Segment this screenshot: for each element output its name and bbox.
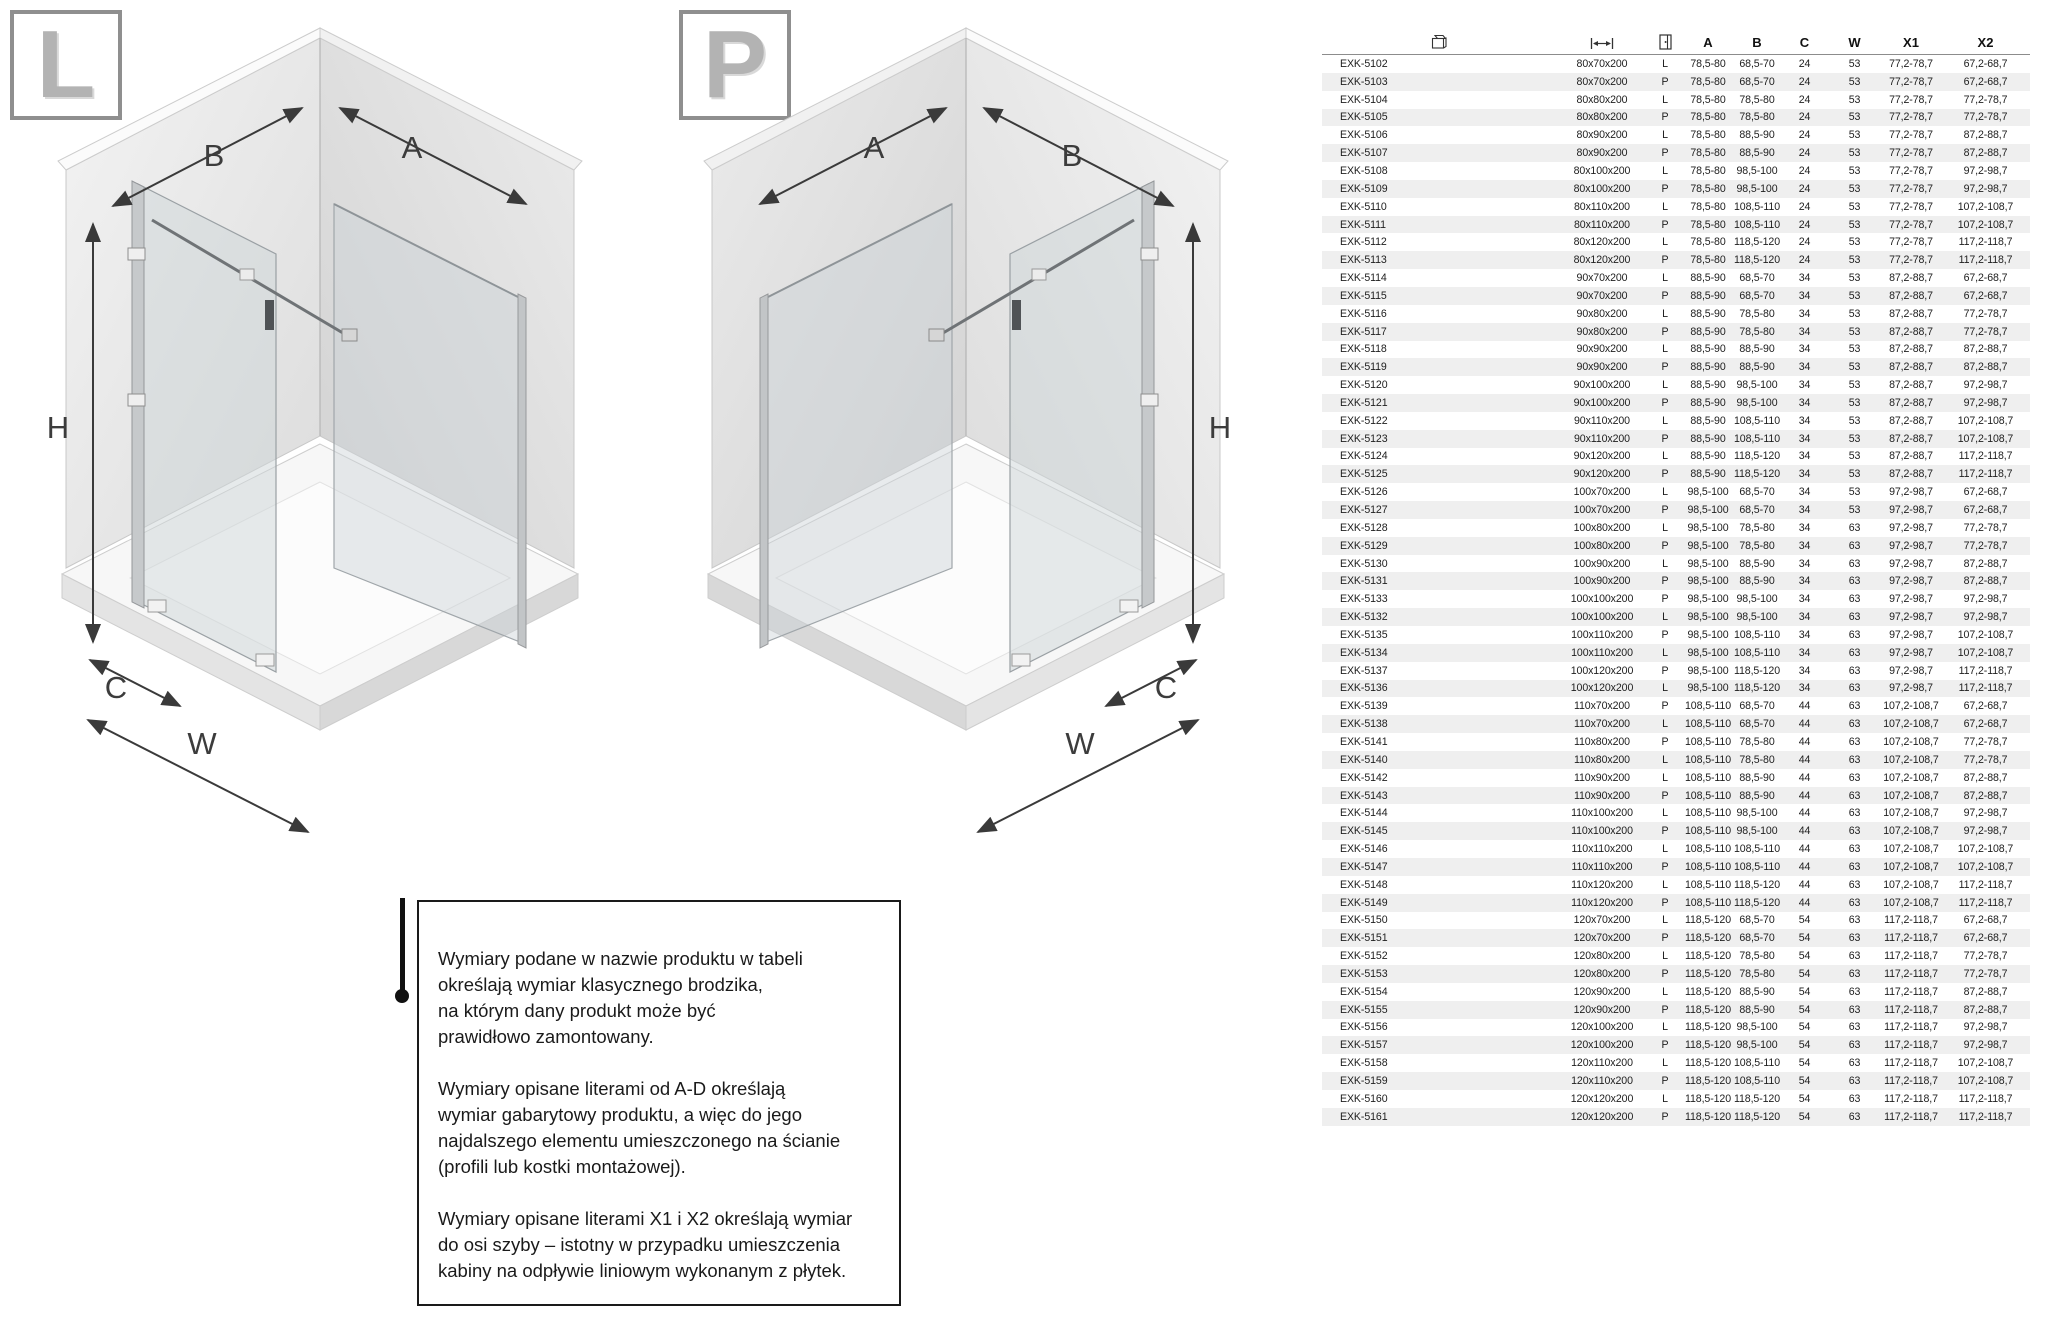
cell-c: 24 — [1781, 236, 1828, 248]
cell-x2: 67,2-68,7 — [1941, 486, 2030, 498]
cell-x1: 97,2-98,7 — [1881, 504, 1941, 516]
cell-side: P — [1647, 575, 1683, 587]
table-row: EXK-5145110x100x200P108,5-11098,5-100446… — [1322, 822, 2030, 840]
cell-a: 118,5-120 — [1683, 1093, 1733, 1105]
cell-x1: 97,2-98,7 — [1881, 593, 1941, 605]
cell-dims: 90x120x200 — [1557, 468, 1647, 480]
cell-b: 88,5-90 — [1733, 147, 1781, 159]
cell-b: 88,5-90 — [1733, 575, 1781, 587]
cell-code: EXK-5141 — [1322, 736, 1557, 748]
cell-x1: 97,2-98,7 — [1881, 522, 1941, 534]
cell-b: 108,5-110 — [1733, 201, 1781, 213]
table-row: EXK-510980x100x200P78,5-8098,5-100245377… — [1322, 180, 2030, 198]
cell-x2: 67,2-68,7 — [1941, 914, 2030, 926]
cell-b: 98,5-100 — [1733, 183, 1781, 195]
cell-code: EXK-5149 — [1322, 897, 1557, 909]
cell-c: 24 — [1781, 254, 1828, 266]
cell-x1: 117,2-118,7 — [1881, 1111, 1941, 1123]
cell-x2: 97,2-98,7 — [1941, 593, 2030, 605]
cell-a: 78,5-80 — [1683, 236, 1733, 248]
cell-w: 53 — [1828, 111, 1881, 123]
table-row: EXK-5158120x110x200L118,5-120108,5-11054… — [1322, 1054, 2030, 1072]
cell-dims: 80x80x200 — [1557, 94, 1647, 106]
cell-x2: 107,2-108,7 — [1941, 843, 2030, 855]
cell-side: P — [1647, 790, 1683, 802]
cell-w: 53 — [1828, 129, 1881, 141]
cell-w: 53 — [1828, 433, 1881, 445]
cell-dims: 80x70x200 — [1557, 76, 1647, 88]
cell-x1: 107,2-108,7 — [1881, 897, 1941, 909]
cell-b: 98,5-100 — [1733, 165, 1781, 177]
cell-w: 63 — [1828, 1021, 1881, 1033]
cell-c: 34 — [1781, 522, 1828, 534]
cell-code: EXK-5115 — [1322, 290, 1557, 302]
cell-c: 34 — [1781, 540, 1828, 552]
cell-b: 88,5-90 — [1733, 558, 1781, 570]
cell-w: 63 — [1828, 861, 1881, 873]
cell-c: 34 — [1781, 308, 1828, 320]
cell-dims: 120x80x200 — [1557, 950, 1647, 962]
cell-b: 98,5-100 — [1733, 1039, 1781, 1051]
cell-dims: 100x100x200 — [1557, 593, 1647, 605]
cell-a: 78,5-80 — [1683, 111, 1733, 123]
cell-a: 118,5-120 — [1683, 1039, 1733, 1051]
cell-x2: 67,2-68,7 — [1941, 58, 2030, 70]
cell-c: 44 — [1781, 843, 1828, 855]
cell-code: EXK-5144 — [1322, 807, 1557, 819]
cell-code: EXK-5147 — [1322, 861, 1557, 873]
table-row: EXK-511380x120x200P78,5-80118,5-12024537… — [1322, 251, 2030, 269]
cell-x1: 107,2-108,7 — [1881, 825, 1941, 837]
cell-code: EXK-5146 — [1322, 843, 1557, 855]
dim-label-h: H — [47, 410, 69, 445]
left-shower-diagram: B A H C W — [18, 8, 618, 888]
cell-x1: 107,2-108,7 — [1881, 772, 1941, 784]
cell-c: 54 — [1781, 1075, 1828, 1087]
cell-side: L — [1647, 843, 1683, 855]
cell-dims: 100x110x200 — [1557, 647, 1647, 659]
cell-code: EXK-5126 — [1322, 486, 1557, 498]
cell-w: 53 — [1828, 450, 1881, 462]
cell-code: EXK-5154 — [1322, 986, 1557, 998]
table-row: EXK-5136100x120x200L98,5-100118,5-120346… — [1322, 680, 2030, 698]
cell-c: 24 — [1781, 76, 1828, 88]
cell-x2: 117,2-118,7 — [1941, 1093, 2030, 1105]
cell-w: 53 — [1828, 147, 1881, 159]
cell-x1: 107,2-108,7 — [1881, 754, 1941, 766]
cell-x1: 117,2-118,7 — [1881, 1021, 1941, 1033]
cell-x1: 107,2-108,7 — [1881, 736, 1941, 748]
cell-c: 44 — [1781, 754, 1828, 766]
cell-w: 53 — [1828, 201, 1881, 213]
table-row: EXK-510880x100x200L78,5-8098,5-100245377… — [1322, 162, 2030, 180]
cell-x1: 97,2-98,7 — [1881, 575, 1941, 587]
table-row: EXK-5139110x70x200P108,5-11068,5-7044631… — [1322, 697, 2030, 715]
table-row: EXK-5144110x100x200L108,5-11098,5-100446… — [1322, 804, 2030, 822]
cell-x2: 117,2-118,7 — [1941, 897, 2030, 909]
table-row: EXK-5132100x100x200L98,5-10098,5-1003463… — [1322, 608, 2030, 626]
cell-side: L — [1647, 1057, 1683, 1069]
cell-side: L — [1647, 486, 1683, 498]
cell-code: EXK-5131 — [1322, 575, 1557, 587]
cell-side: P — [1647, 504, 1683, 516]
cell-w: 63 — [1828, 1093, 1881, 1105]
cell-code: EXK-5160 — [1322, 1093, 1557, 1105]
cell-w: 63 — [1828, 897, 1881, 909]
table-row: EXK-5130100x90x200L98,5-10088,5-90346397… — [1322, 555, 2030, 573]
cell-c: 24 — [1781, 219, 1828, 231]
info-accent-line — [400, 898, 405, 990]
info-paragraph: Wymiary opisane literami od A-D określaj… — [438, 1076, 885, 1180]
table-row: EXK-511890x90x200L88,5-9088,5-90345387,2… — [1322, 341, 2030, 359]
table-row: EXK-512490x120x200L88,5-90118,5-12034538… — [1322, 448, 2030, 466]
cell-b: 118,5-120 — [1733, 468, 1781, 480]
cell-side: P — [1647, 540, 1683, 552]
cell-dims: 100x120x200 — [1557, 682, 1647, 694]
cell-dims: 110x70x200 — [1557, 718, 1647, 730]
cell-x2: 97,2-98,7 — [1941, 165, 2030, 177]
cell-side: P — [1647, 1004, 1683, 1016]
cell-code: EXK-5120 — [1322, 379, 1557, 391]
cell-x1: 97,2-98,7 — [1881, 558, 1941, 570]
cell-b: 68,5-70 — [1733, 700, 1781, 712]
info-paragraph: Wymiary podane w nazwie produktu w tabel… — [438, 946, 885, 1050]
cell-code: EXK-5119 — [1322, 361, 1557, 373]
cell-w: 63 — [1828, 736, 1881, 748]
table-row: EXK-511280x120x200L78,5-80118,5-12024537… — [1322, 233, 2030, 251]
cell-c: 54 — [1781, 1039, 1828, 1051]
cell-a: 118,5-120 — [1683, 950, 1733, 962]
cell-dims: 110x100x200 — [1557, 807, 1647, 819]
cell-c: 24 — [1781, 165, 1828, 177]
cell-side: L — [1647, 201, 1683, 213]
cell-c: 34 — [1781, 504, 1828, 516]
cell-dims: 110x90x200 — [1557, 772, 1647, 784]
cell-code: EXK-5111 — [1322, 219, 1557, 231]
cell-a: 88,5-90 — [1683, 397, 1733, 409]
cell-dims: 110x120x200 — [1557, 879, 1647, 891]
dim-label-b: B — [204, 138, 225, 173]
col-header-a: A — [1683, 35, 1733, 50]
cell-b: 88,5-90 — [1733, 361, 1781, 373]
cell-code: EXK-5105 — [1322, 111, 1557, 123]
table-row: EXK-5148110x120x200L108,5-110118,5-12044… — [1322, 876, 2030, 894]
cell-b: 118,5-120 — [1733, 254, 1781, 266]
cell-code: EXK-5135 — [1322, 629, 1557, 641]
cell-dims: 120x80x200 — [1557, 968, 1647, 980]
cell-x2: 107,2-108,7 — [1941, 1075, 2030, 1087]
cell-w: 53 — [1828, 219, 1881, 231]
cell-side: P — [1647, 361, 1683, 373]
cell-x2: 77,2-78,7 — [1941, 111, 2030, 123]
cell-a: 98,5-100 — [1683, 540, 1733, 552]
cell-w: 63 — [1828, 682, 1881, 694]
cell-x1: 87,2-88,7 — [1881, 433, 1941, 445]
cell-a: 78,5-80 — [1683, 201, 1733, 213]
info-accent-dot — [395, 989, 409, 1003]
cell-x1: 87,2-88,7 — [1881, 308, 1941, 320]
cell-x1: 77,2-78,7 — [1881, 129, 1941, 141]
table-row: EXK-512390x110x200P88,5-90108,5-11034538… — [1322, 430, 2030, 448]
cell-a: 108,5-110 — [1683, 843, 1733, 855]
cell-dims: 100x100x200 — [1557, 611, 1647, 623]
cell-c: 44 — [1781, 790, 1828, 802]
cell-b: 108,5-110 — [1733, 433, 1781, 445]
cell-a: 88,5-90 — [1683, 415, 1733, 427]
cell-w: 53 — [1828, 58, 1881, 70]
cell-x1: 87,2-88,7 — [1881, 379, 1941, 391]
cell-a: 108,5-110 — [1683, 700, 1733, 712]
cell-b: 68,5-70 — [1733, 58, 1781, 70]
cell-code: EXK-5145 — [1322, 825, 1557, 837]
cell-x2: 77,2-78,7 — [1941, 968, 2030, 980]
cell-x1: 107,2-108,7 — [1881, 790, 1941, 802]
cell-a: 78,5-80 — [1683, 254, 1733, 266]
cell-x1: 117,2-118,7 — [1881, 1004, 1941, 1016]
dimensions-icon — [1557, 37, 1647, 50]
cell-dims: 120x120x200 — [1557, 1111, 1647, 1123]
cell-c: 44 — [1781, 736, 1828, 748]
info-box: Wymiary podane w nazwie produktu w tabel… — [417, 900, 901, 1306]
cell-x1: 107,2-108,7 — [1881, 718, 1941, 730]
cell-x2: 67,2-68,7 — [1941, 290, 2030, 302]
cell-x1: 117,2-118,7 — [1881, 986, 1941, 998]
cell-side: L — [1647, 1093, 1683, 1105]
cell-code: EXK-5116 — [1322, 308, 1557, 320]
cell-b: 68,5-70 — [1733, 504, 1781, 516]
cell-x2: 107,2-108,7 — [1941, 219, 2030, 231]
cell-x1: 77,2-78,7 — [1881, 219, 1941, 231]
cell-dims: 90x80x200 — [1557, 326, 1647, 338]
cell-a: 108,5-110 — [1683, 879, 1733, 891]
cell-side: L — [1647, 1021, 1683, 1033]
cell-w: 53 — [1828, 415, 1881, 427]
cell-a: 98,5-100 — [1683, 629, 1733, 641]
cell-a: 98,5-100 — [1683, 575, 1733, 587]
cell-x2: 107,2-108,7 — [1941, 415, 2030, 427]
dim-label-b: B — [1062, 138, 1083, 173]
cell-b: 78,5-80 — [1733, 326, 1781, 338]
cell-code: EXK-5156 — [1322, 1021, 1557, 1033]
cell-w: 53 — [1828, 254, 1881, 266]
cell-a: 88,5-90 — [1683, 343, 1733, 355]
cell-code: EXK-5151 — [1322, 932, 1557, 944]
cell-a: 98,5-100 — [1683, 647, 1733, 659]
cell-dims: 110x110x200 — [1557, 861, 1647, 873]
cell-x2: 117,2-118,7 — [1941, 450, 2030, 462]
cell-c: 54 — [1781, 986, 1828, 998]
cell-dims: 90x120x200 — [1557, 450, 1647, 462]
table-row: EXK-5133100x100x200P98,5-10098,5-1003463… — [1322, 590, 2030, 608]
cell-dims: 90x70x200 — [1557, 272, 1647, 284]
cell-x1: 77,2-78,7 — [1881, 111, 1941, 123]
cell-x2: 107,2-108,7 — [1941, 201, 2030, 213]
table-row: EXK-5128100x80x200L98,5-10078,5-80346397… — [1322, 519, 2030, 537]
cell-c: 34 — [1781, 290, 1828, 302]
cell-a: 88,5-90 — [1683, 290, 1733, 302]
cell-c: 34 — [1781, 433, 1828, 445]
cell-x2: 107,2-108,7 — [1941, 647, 2030, 659]
cell-code: EXK-5122 — [1322, 415, 1557, 427]
cell-a: 118,5-120 — [1683, 1111, 1733, 1123]
cell-c: 44 — [1781, 718, 1828, 730]
cell-w: 63 — [1828, 718, 1881, 730]
cell-b: 88,5-90 — [1733, 343, 1781, 355]
cell-code: EXK-5104 — [1322, 94, 1557, 106]
cell-w: 53 — [1828, 308, 1881, 320]
table-row: EXK-512290x110x200L88,5-90108,5-11034538… — [1322, 412, 2030, 430]
cell-dims: 90x100x200 — [1557, 379, 1647, 391]
table-row: EXK-5143110x90x200P108,5-11088,5-9044631… — [1322, 787, 2030, 805]
cell-x1: 117,2-118,7 — [1881, 1039, 1941, 1051]
cell-a: 108,5-110 — [1683, 807, 1733, 819]
table-row: EXK-511490x70x200L88,5-9068,5-70345387,2… — [1322, 269, 2030, 287]
cell-b: 68,5-70 — [1733, 486, 1781, 498]
cell-x2: 77,2-78,7 — [1941, 94, 2030, 106]
cell-side: P — [1647, 147, 1683, 159]
cell-a: 88,5-90 — [1683, 361, 1733, 373]
cell-x1: 77,2-78,7 — [1881, 236, 1941, 248]
table-row: EXK-5141110x80x200P108,5-11078,5-8044631… — [1322, 733, 2030, 751]
table-row: EXK-5157120x100x200P118,5-12098,5-100546… — [1322, 1036, 2030, 1054]
cell-side: L — [1647, 754, 1683, 766]
cell-dims: 120x90x200 — [1557, 1004, 1647, 1016]
cell-x1: 117,2-118,7 — [1881, 932, 1941, 944]
table-row: EXK-5150120x70x200L118,5-12068,5-7054631… — [1322, 912, 2030, 930]
cell-code: EXK-5137 — [1322, 665, 1557, 677]
cell-c: 44 — [1781, 879, 1828, 891]
col-header-x1: X1 — [1881, 35, 1941, 50]
cell-code: EXK-5136 — [1322, 682, 1557, 694]
dim-label-c: C — [1155, 670, 1177, 705]
door-side-icon — [1647, 34, 1683, 50]
cell-side: L — [1647, 522, 1683, 534]
cell-b: 98,5-100 — [1733, 825, 1781, 837]
cell-b: 68,5-70 — [1733, 914, 1781, 926]
cell-b: 68,5-70 — [1733, 290, 1781, 302]
cell-x2: 67,2-68,7 — [1941, 718, 2030, 730]
cell-b: 78,5-80 — [1733, 968, 1781, 980]
cell-c: 34 — [1781, 629, 1828, 641]
cell-c: 34 — [1781, 558, 1828, 570]
cell-side: L — [1647, 558, 1683, 570]
dim-label-a: A — [864, 130, 885, 165]
cell-a: 78,5-80 — [1683, 129, 1733, 141]
cell-code: EXK-5112 — [1322, 236, 1557, 248]
product-box-icon — [1322, 34, 1557, 50]
table-row: EXK-5126100x70x200L98,5-10068,5-70345397… — [1322, 483, 2030, 501]
cell-code: EXK-5127 — [1322, 504, 1557, 516]
cell-x2: 87,2-88,7 — [1941, 147, 2030, 159]
cell-c: 44 — [1781, 861, 1828, 873]
cell-side: L — [1647, 272, 1683, 284]
cell-code: EXK-5140 — [1322, 754, 1557, 766]
cell-c: 34 — [1781, 397, 1828, 409]
cell-side: L — [1647, 308, 1683, 320]
cell-b: 78,5-80 — [1733, 308, 1781, 320]
cell-x2: 67,2-68,7 — [1941, 700, 2030, 712]
cell-w: 63 — [1828, 843, 1881, 855]
cell-dims: 80x100x200 — [1557, 165, 1647, 177]
cell-x2: 77,2-78,7 — [1941, 522, 2030, 534]
cell-c: 44 — [1781, 700, 1828, 712]
cell-side: P — [1647, 897, 1683, 909]
cell-dims: 110x90x200 — [1557, 790, 1647, 802]
table-row: EXK-5146110x110x200L108,5-110108,5-11044… — [1322, 840, 2030, 858]
table-row: EXK-510680x90x200L78,5-8088,5-90245377,2… — [1322, 126, 2030, 144]
col-header-w: W — [1828, 35, 1881, 50]
cell-a: 108,5-110 — [1683, 754, 1733, 766]
table-row: EXK-5135100x110x200P98,5-100108,5-110346… — [1322, 626, 2030, 644]
cell-w: 53 — [1828, 397, 1881, 409]
cell-code: EXK-5123 — [1322, 433, 1557, 445]
cell-w: 53 — [1828, 183, 1881, 195]
cell-x2: 97,2-98,7 — [1941, 1021, 2030, 1033]
cell-b: 108,5-110 — [1733, 629, 1781, 641]
cell-code: EXK-5148 — [1322, 879, 1557, 891]
cell-c: 54 — [1781, 1093, 1828, 1105]
cell-a: 88,5-90 — [1683, 468, 1733, 480]
cell-x2: 117,2-118,7 — [1941, 1111, 2030, 1123]
cell-side: P — [1647, 593, 1683, 605]
cell-b: 118,5-120 — [1733, 682, 1781, 694]
cell-b: 108,5-110 — [1733, 843, 1781, 855]
table-row: EXK-5152120x80x200L118,5-12078,5-8054631… — [1322, 947, 2030, 965]
cell-w: 63 — [1828, 558, 1881, 570]
cell-code: EXK-5134 — [1322, 647, 1557, 659]
cell-c: 34 — [1781, 665, 1828, 677]
cell-w: 63 — [1828, 879, 1881, 891]
cell-x2: 77,2-78,7 — [1941, 754, 2030, 766]
cell-side: L — [1647, 718, 1683, 730]
cell-side: L — [1647, 611, 1683, 623]
cell-c: 34 — [1781, 468, 1828, 480]
cell-b: 88,5-90 — [1733, 129, 1781, 141]
cell-b: 98,5-100 — [1733, 593, 1781, 605]
cell-b: 108,5-110 — [1733, 647, 1781, 659]
dim-label-w: W — [1065, 726, 1095, 761]
cell-a: 108,5-110 — [1683, 736, 1733, 748]
cell-w: 53 — [1828, 504, 1881, 516]
cell-dims: 120x120x200 — [1557, 1093, 1647, 1105]
cell-b: 78,5-80 — [1733, 111, 1781, 123]
cell-dims: 80x120x200 — [1557, 254, 1647, 266]
cell-c: 24 — [1781, 201, 1828, 213]
cell-a: 98,5-100 — [1683, 593, 1733, 605]
cell-a: 98,5-100 — [1683, 522, 1733, 534]
cell-x2: 87,2-88,7 — [1941, 790, 2030, 802]
table-row: EXK-5154120x90x200L118,5-12088,5-9054631… — [1322, 983, 2030, 1001]
cell-dims: 110x80x200 — [1557, 736, 1647, 748]
table-row: EXK-5159120x110x200P118,5-120108,5-11054… — [1322, 1072, 2030, 1090]
cell-a: 108,5-110 — [1683, 897, 1733, 909]
cell-side: L — [1647, 415, 1683, 427]
cell-dims: 110x110x200 — [1557, 843, 1647, 855]
col-header-b: B — [1733, 35, 1781, 50]
cell-side: P — [1647, 1111, 1683, 1123]
cell-code: EXK-5152 — [1322, 950, 1557, 962]
cell-w: 63 — [1828, 540, 1881, 552]
cell-x2: 77,2-78,7 — [1941, 950, 2030, 962]
cell-side: P — [1647, 825, 1683, 837]
cell-a: 108,5-110 — [1683, 718, 1733, 730]
cell-x1: 77,2-78,7 — [1881, 147, 1941, 159]
table-row: EXK-5127100x70x200P98,5-10068,5-70345397… — [1322, 501, 2030, 519]
cell-code: EXK-5102 — [1322, 58, 1557, 70]
cell-side: L — [1647, 950, 1683, 962]
cell-x1: 87,2-88,7 — [1881, 450, 1941, 462]
table-row: EXK-510280x70x200L78,5-8068,5-70245377,2… — [1322, 55, 2030, 73]
